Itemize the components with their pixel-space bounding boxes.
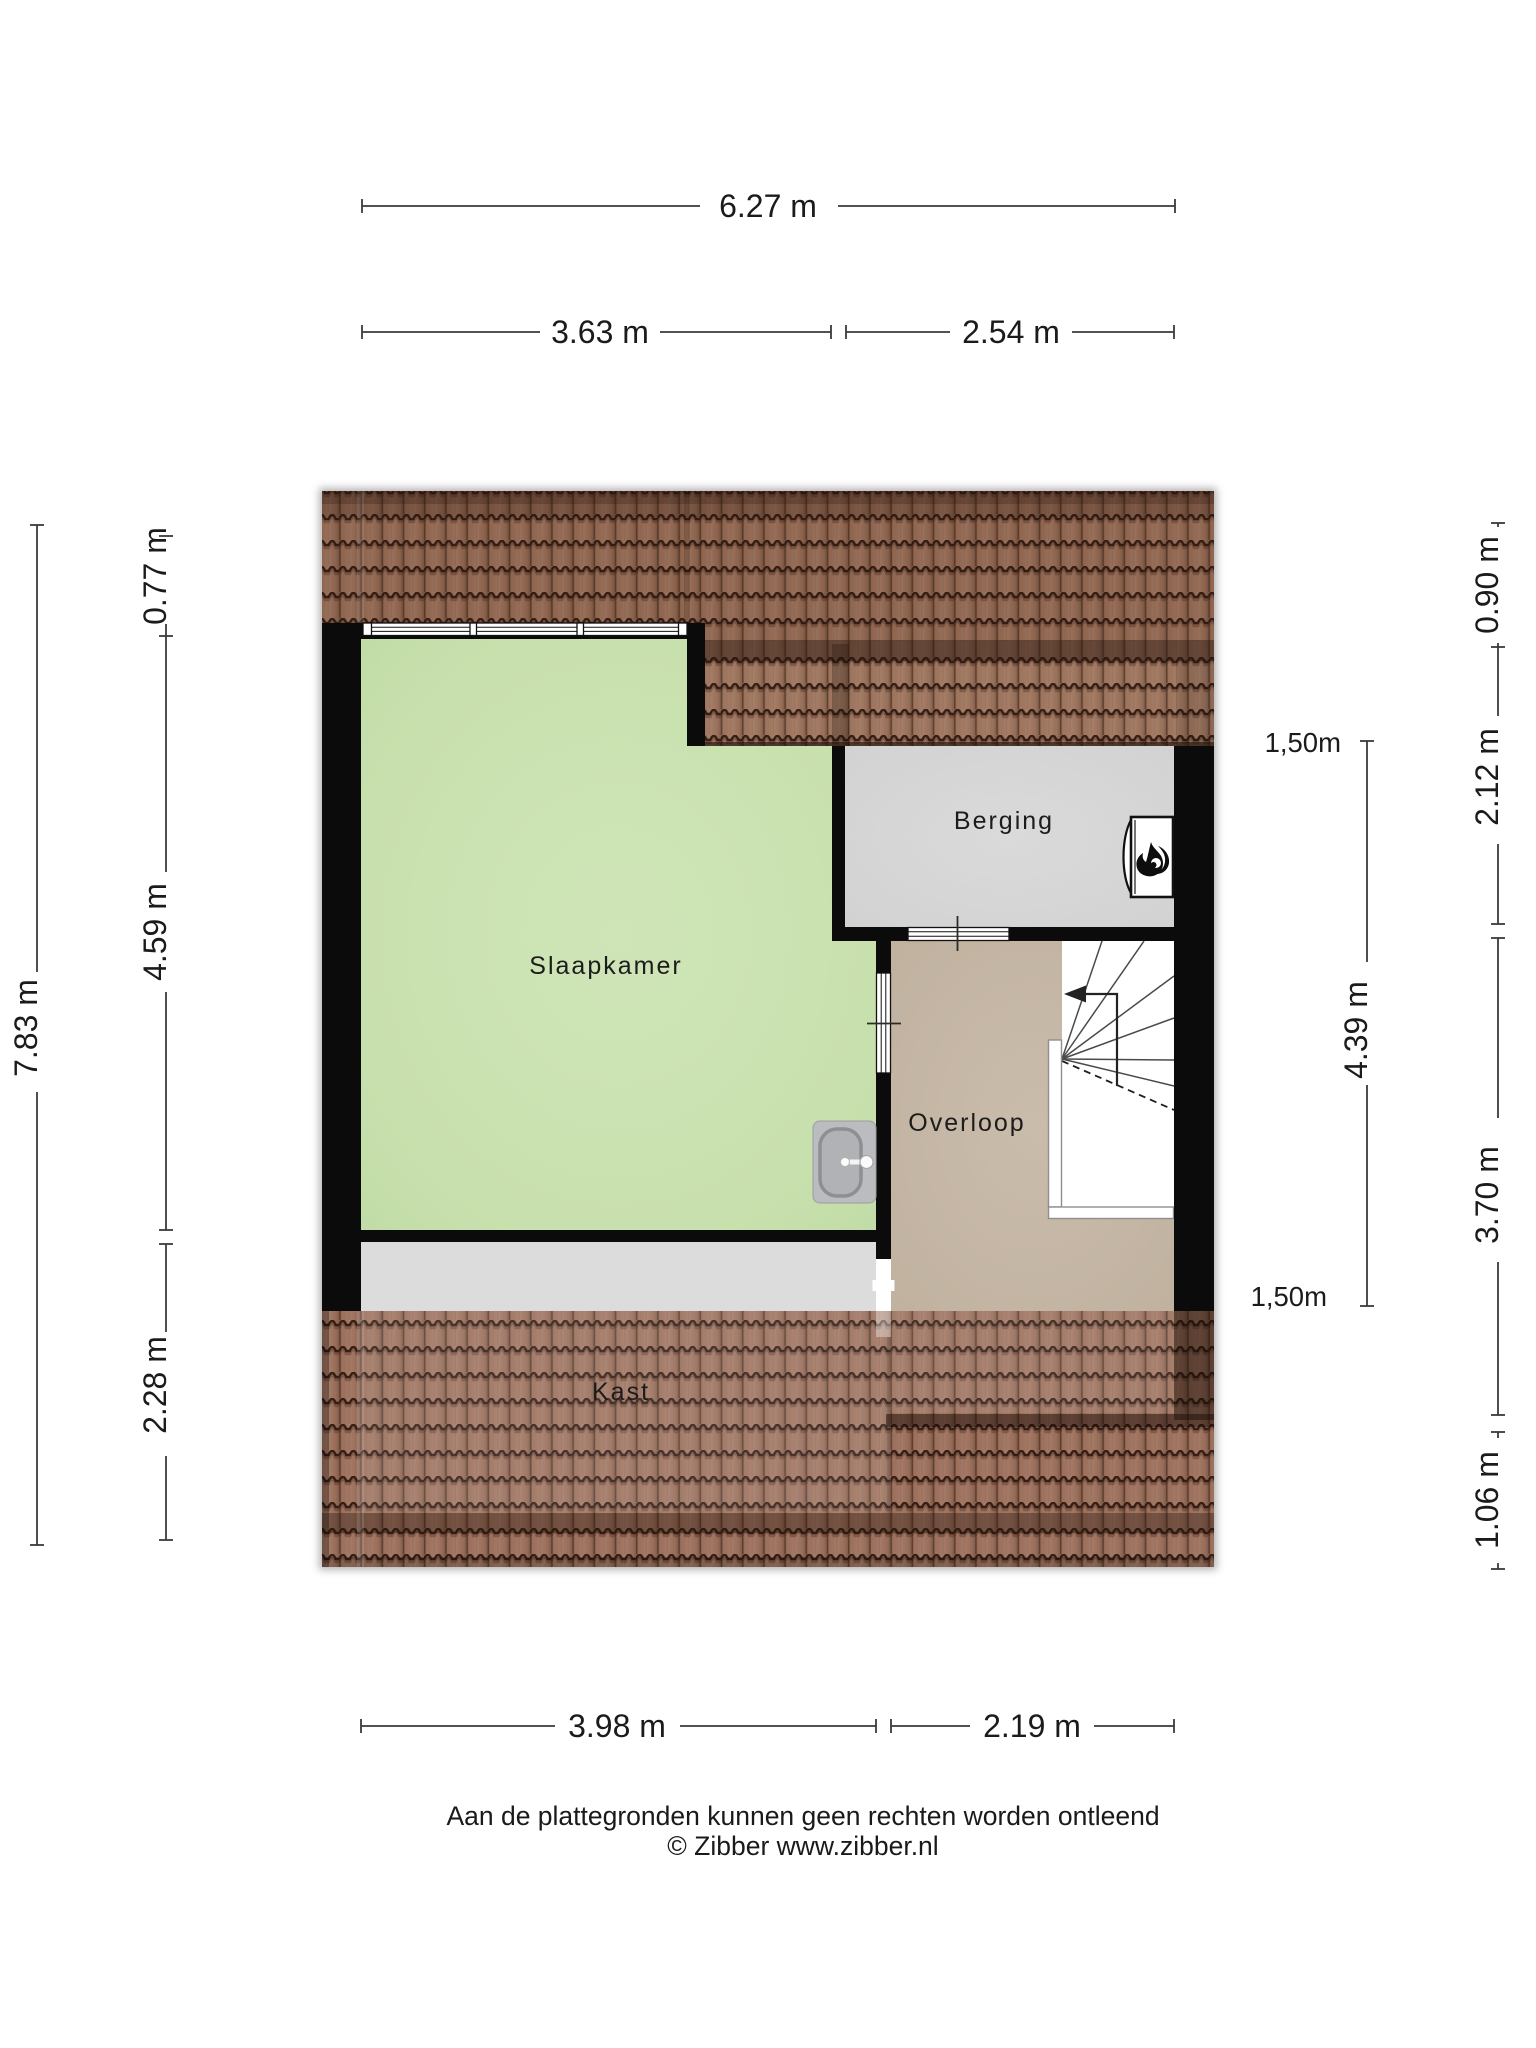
svg-text:3.70 m: 3.70 m [1469,1146,1505,1244]
svg-text:2.19 m: 2.19 m [983,1708,1081,1744]
svg-text:3.63 m: 3.63 m [551,314,649,350]
svg-text:7.83 m: 7.83 m [8,979,44,1077]
svg-text:4.39 m: 4.39 m [1338,981,1374,1079]
svg-text:3.98 m: 3.98 m [568,1708,666,1744]
svg-text:4.59 m: 4.59 m [137,883,173,981]
svg-text:2.28 m: 2.28 m [137,1336,173,1434]
svg-text:1.06 m: 1.06 m [1469,1451,1505,1549]
svg-text:1,50m: 1,50m [1251,1281,1327,1312]
svg-text:Overloop: Overloop [908,1109,1025,1137]
svg-text:2.54 m: 2.54 m [962,314,1060,350]
svg-text:0.77 m: 0.77 m [137,527,173,625]
svg-text:Aan de plattegronden kunnen ge: Aan de plattegronden kunnen geen rechten… [446,1801,1159,1831]
svg-text:1,50m: 1,50m [1265,727,1341,758]
svg-text:Kast: Kast [592,1378,650,1406]
svg-text:© Zibber www.zibber.nl: © Zibber www.zibber.nl [667,1831,938,1861]
svg-text:Berging: Berging [954,807,1054,835]
svg-text:0.90 m: 0.90 m [1469,536,1505,634]
svg-text:6.27 m: 6.27 m [719,188,817,224]
svg-text:2.12 m: 2.12 m [1469,728,1505,826]
svg-text:Slaapkamer: Slaapkamer [529,952,682,980]
